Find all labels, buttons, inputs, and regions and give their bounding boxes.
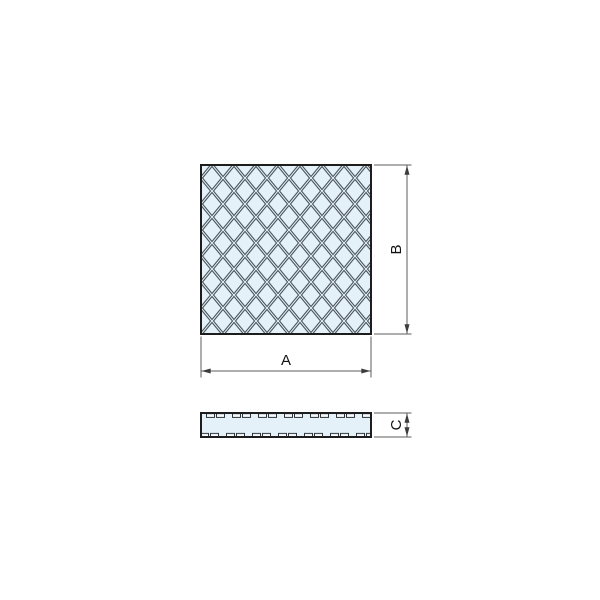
dimension-b: B (374, 165, 412, 334)
dimension-c: C (374, 413, 412, 437)
dimension-a-label: A (281, 352, 291, 369)
dimension-c-label: C (388, 419, 405, 430)
technical-drawing-page: B A C (0, 0, 600, 600)
dimension-b-label: B (388, 244, 405, 254)
pad-technical-drawing: B A C (0, 0, 600, 600)
dimension-a: A (201, 337, 371, 378)
diamond-tread-pattern (201, 165, 371, 334)
top-view (201, 165, 371, 334)
side-view (201, 413, 371, 438)
